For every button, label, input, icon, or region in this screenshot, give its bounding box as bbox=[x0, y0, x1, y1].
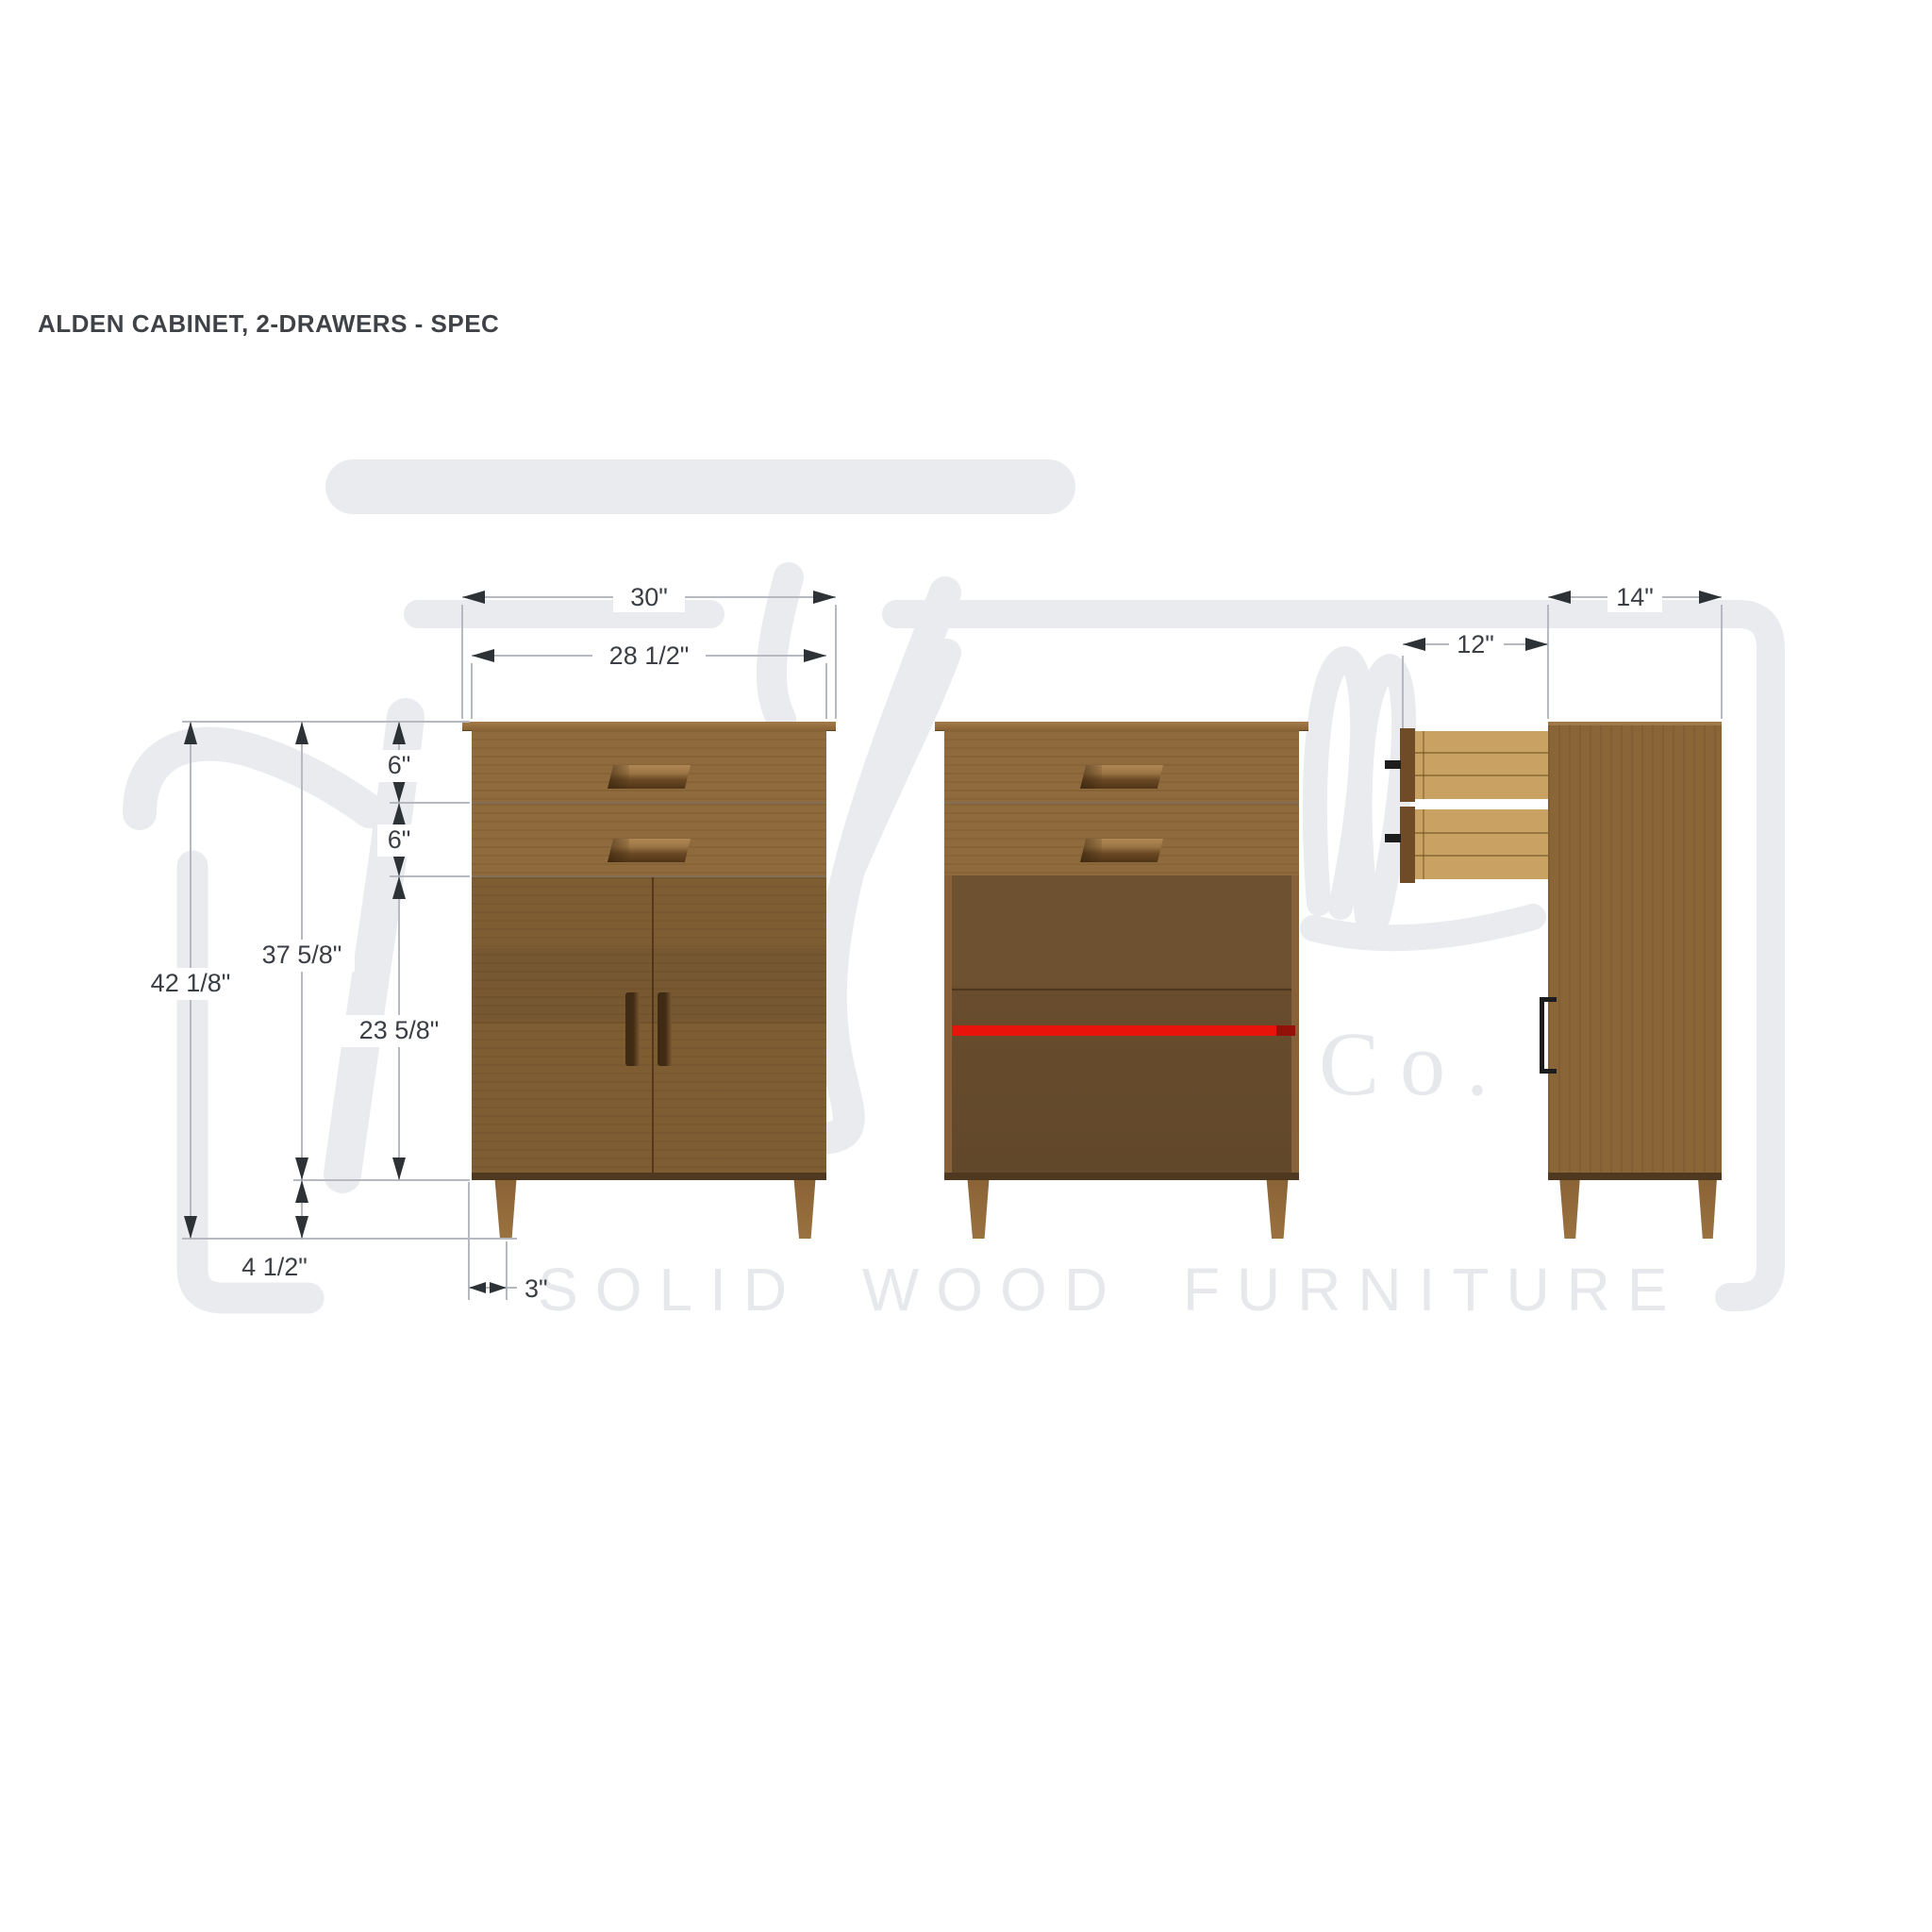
svg-text:12": 12" bbox=[1457, 630, 1494, 658]
extension-lines bbox=[182, 605, 1722, 1300]
svg-text:42 1/8": 42 1/8" bbox=[151, 969, 231, 997]
dim-leg-height: 4 1/2" bbox=[241, 1180, 308, 1281]
dim-depth: 14" bbox=[1548, 582, 1722, 612]
dim-second-drawer-height: 6" bbox=[377, 803, 421, 876]
dim-leg-inset: 3" bbox=[469, 1274, 548, 1303]
dim-door-section-height: 23 5/8" bbox=[341, 876, 457, 1180]
svg-text:30": 30" bbox=[630, 583, 668, 611]
svg-text:6": 6" bbox=[388, 751, 411, 779]
svg-text:4 1/2": 4 1/2" bbox=[241, 1253, 308, 1281]
dim-overall-height: 42 1/8" bbox=[138, 722, 243, 1239]
svg-text:6": 6" bbox=[388, 825, 411, 854]
svg-text:3": 3" bbox=[525, 1274, 548, 1303]
spec-sheet-canvas: Co. SOLID WOOD FURNITURE ALDEN CABINET, … bbox=[0, 0, 1932, 1932]
svg-text:14": 14" bbox=[1616, 583, 1654, 611]
dim-carcase-height: 37 5/8" bbox=[249, 722, 355, 1180]
dim-drawer-width: 28 1/2" bbox=[472, 641, 826, 671]
svg-text:23 5/8": 23 5/8" bbox=[359, 1016, 440, 1044]
dim-top-drawer-height: 6" bbox=[377, 722, 421, 803]
svg-text:37 5/8": 37 5/8" bbox=[262, 941, 342, 969]
dim-drawer-extension: 12" bbox=[1403, 629, 1548, 659]
dim-overall-width: 30" bbox=[462, 582, 836, 612]
svg-text:28 1/2": 28 1/2" bbox=[609, 641, 690, 670]
dimension-annotations: 30" 28 1/2" 42 1/8" 37 5/8" 6" bbox=[0, 0, 1932, 1932]
